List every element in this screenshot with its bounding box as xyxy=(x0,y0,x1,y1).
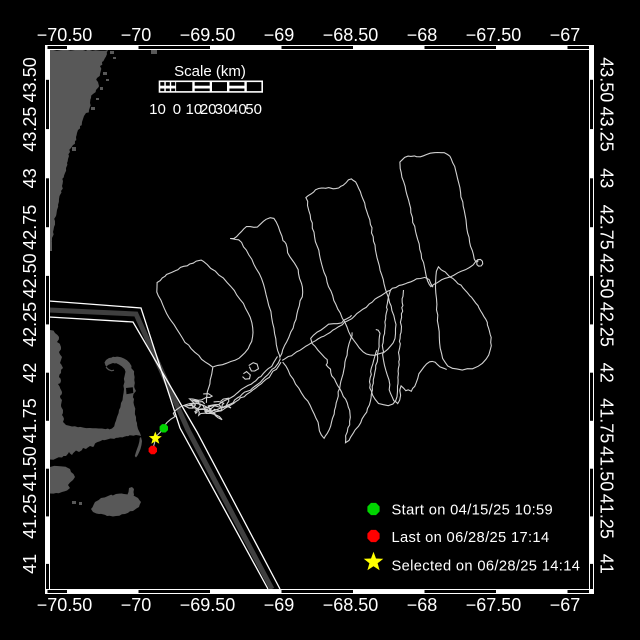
svg-text:−69.50: −69.50 xyxy=(180,25,236,45)
svg-text:42.75: 42.75 xyxy=(20,205,40,250)
svg-text:41.50: 41.50 xyxy=(597,446,617,491)
svg-text:Selected on 06/28/25 14:14: Selected on 06/28/25 14:14 xyxy=(392,559,581,575)
svg-text:42: 42 xyxy=(20,363,40,383)
svg-text:41.75: 41.75 xyxy=(597,398,617,443)
svg-text:41.25: 41.25 xyxy=(597,494,617,539)
svg-text:41.25: 41.25 xyxy=(20,494,40,539)
svg-text:Last on 06/28/25 17:14: Last on 06/28/25 17:14 xyxy=(392,530,550,546)
svg-text:Start on 04/15/25 10:59: Start on 04/15/25 10:59 xyxy=(392,503,554,519)
svg-text:−69.50: −69.50 xyxy=(180,595,236,615)
svg-text:42: 42 xyxy=(597,363,617,383)
svg-text:−70.50: −70.50 xyxy=(37,595,93,615)
svg-text:−68: −68 xyxy=(407,25,438,45)
svg-text:−67: −67 xyxy=(550,595,581,615)
svg-text:41.75: 41.75 xyxy=(20,398,40,443)
svg-text:−70: −70 xyxy=(121,595,152,615)
svg-text:43: 43 xyxy=(20,168,40,188)
svg-text:43.50: 43.50 xyxy=(20,57,40,102)
svg-text:43.25: 43.25 xyxy=(20,107,40,152)
svg-text:43: 43 xyxy=(597,168,617,188)
svg-text:43.25: 43.25 xyxy=(597,107,617,152)
svg-text:−69: −69 xyxy=(264,595,295,615)
svg-text:50: 50 xyxy=(245,101,262,118)
svg-text:42.25: 42.25 xyxy=(20,302,40,347)
svg-text:−68: −68 xyxy=(407,595,438,615)
svg-text:Scale (km): Scale (km) xyxy=(174,63,246,80)
svg-text:10: 10 xyxy=(149,101,166,118)
svg-text:41.50: 41.50 xyxy=(20,446,40,491)
svg-text:41: 41 xyxy=(597,554,617,574)
svg-text:−70: −70 xyxy=(121,25,152,45)
svg-text:42.50: 42.50 xyxy=(20,253,40,298)
svg-text:43.50: 43.50 xyxy=(597,57,617,102)
svg-text:−70.50: −70.50 xyxy=(37,25,93,45)
svg-text:41: 41 xyxy=(20,554,40,574)
svg-text:42.75: 42.75 xyxy=(597,205,617,250)
svg-text:0: 0 xyxy=(173,101,181,118)
svg-text:−69: −69 xyxy=(264,25,295,45)
svg-text:−68.50: −68.50 xyxy=(323,25,379,45)
svg-text:42.50: 42.50 xyxy=(597,253,617,298)
svg-text:−67: −67 xyxy=(550,25,581,45)
svg-text:40: 40 xyxy=(230,101,247,118)
svg-text:−68.50: −68.50 xyxy=(323,595,379,615)
svg-text:−67.50: −67.50 xyxy=(466,25,522,45)
svg-text:30: 30 xyxy=(215,101,232,118)
svg-text:−67.50: −67.50 xyxy=(466,595,522,615)
svg-text:42.25: 42.25 xyxy=(597,302,617,347)
